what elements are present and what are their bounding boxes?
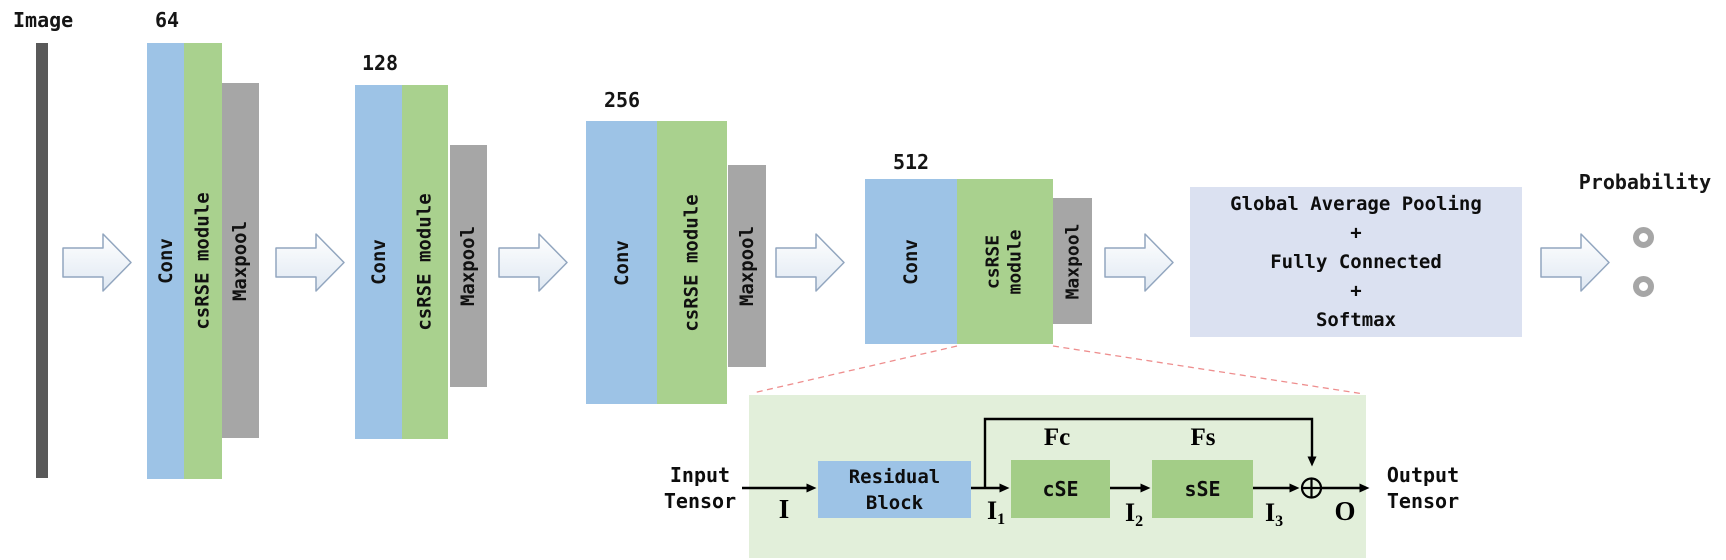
stage3-maxpool-label: Maxpool — [736, 226, 758, 306]
block-arrow-shape — [1541, 234, 1609, 291]
i1-sub: 1 — [997, 511, 1005, 528]
output-tensor-line1: Output — [1378, 462, 1468, 488]
i3-sub: 3 — [1275, 513, 1283, 530]
stage1-conv-label: Conv — [155, 238, 177, 284]
sse-box: sSE — [1152, 460, 1253, 518]
probability-label: Probability — [1560, 170, 1726, 194]
residual-block-box: Residual Block — [818, 461, 971, 518]
flow-arrow-3 — [498, 233, 568, 292]
flow-arrow-6 — [1540, 233, 1610, 292]
probability-node-1 — [1633, 227, 1654, 248]
block-arrow-shape — [499, 234, 567, 291]
stage4-csrse-label-line2: module — [1005, 229, 1027, 294]
i1-base: I — [987, 496, 997, 525]
flow-arrow-4 — [775, 233, 845, 292]
classifier-head-box: Global Average Pooling + Fully Connected… — [1190, 187, 1522, 337]
output-tensor-line2: Tensor — [1378, 488, 1468, 514]
input-tensor-line2: Tensor — [656, 488, 744, 514]
tensor-i2-label: I2 — [1117, 498, 1151, 528]
i3-base: I — [1265, 498, 1275, 527]
probability-node-2 — [1633, 276, 1654, 297]
stage2-csrse-bar: csRSE module — [402, 85, 448, 439]
head-line-gap: Global Average Pooling — [1190, 190, 1522, 219]
head-line-softmax: Softmax — [1190, 306, 1522, 335]
stage2-csrse-label: csRSE module — [414, 193, 436, 330]
stage2-conv-bar: Conv — [355, 85, 402, 439]
stage3-conv-label: Conv — [610, 240, 632, 286]
block-arrow-shape — [63, 234, 131, 291]
block-arrow-shape — [276, 234, 344, 291]
stage4-csrse-bar: csRSE module — [957, 179, 1053, 344]
stage1-conv-bar: Conv — [147, 43, 184, 479]
output-tensor-label: Output Tensor — [1378, 462, 1468, 514]
block-arrow-shape — [1105, 234, 1173, 291]
i2-base: I — [1125, 498, 1135, 527]
stage1-maxpool-label: Maxpool — [230, 220, 252, 300]
head-line-plus2: + — [1190, 277, 1522, 306]
stage4-maxpool-bar: Maxpool — [1053, 198, 1092, 324]
sse-label: sSE — [1184, 477, 1220, 501]
i2-sub: 2 — [1135, 513, 1143, 530]
residual-block-line1: Residual — [849, 464, 941, 490]
input-tensor-label: Input Tensor — [656, 462, 744, 514]
cse-box: cSE — [1011, 460, 1110, 518]
stage4-csrse-label: csRSE module — [983, 229, 1027, 294]
stage1-maxpool-bar: Maxpool — [222, 83, 259, 438]
stage3-csrse-bar: csRSE module — [657, 121, 727, 404]
tensor-i3-label: I3 — [1257, 498, 1291, 528]
residual-block-line2: Block — [866, 490, 923, 516]
zoom-guide-right-dashed-line — [1053, 346, 1364, 394]
stage3-conv-bar: Conv — [586, 121, 657, 404]
stage4-conv-label: Conv — [900, 239, 922, 285]
stage3-maxpool-bar: Maxpool — [728, 165, 766, 367]
input-tensor-line1: Input — [656, 462, 744, 488]
flow-arrow-1 — [62, 233, 132, 292]
stage3-csrse-label: csRSE module — [681, 194, 703, 331]
tensor-o-label: O — [1330, 496, 1360, 527]
stage1-csrse-label: csRSE module — [192, 192, 214, 329]
stage4-conv-bar: Conv — [865, 179, 957, 344]
stage2-maxpool-label: Maxpool — [458, 226, 480, 306]
image-input-bar — [36, 43, 48, 478]
fc-function-label: Fc — [1032, 424, 1082, 452]
flow-arrow-5 — [1104, 233, 1174, 292]
stage4-csrse-label-line1: csRSE — [983, 229, 1005, 294]
stage1-depth-label: 64 — [147, 8, 187, 32]
stage3-depth-label: 256 — [586, 88, 658, 112]
stage4-depth-label: 512 — [865, 150, 957, 174]
stage2-maxpool-bar: Maxpool — [450, 145, 487, 387]
fs-function-label: Fs — [1178, 424, 1228, 452]
stage1-csrse-bar: csRSE module — [184, 43, 222, 479]
head-line-fc: Fully Connected — [1190, 248, 1522, 277]
image-label: Image — [13, 8, 73, 32]
stage4-maxpool-label: Maxpool — [1062, 223, 1083, 299]
zoom-guide-left-dashed-line — [753, 346, 957, 393]
cse-label: cSE — [1042, 477, 1078, 501]
tensor-i1-label: I1 — [979, 496, 1013, 526]
tensor-i-label: I — [769, 494, 799, 525]
block-arrow-shape — [776, 234, 844, 291]
stage2-depth-label: 128 — [355, 51, 405, 75]
head-line-plus1: + — [1190, 219, 1522, 248]
architecture-diagram: Image 64 Conv csRSE module Maxpool 128 C… — [0, 0, 1726, 560]
stage2-conv-label: Conv — [367, 239, 389, 285]
flow-arrow-2 — [275, 233, 345, 292]
